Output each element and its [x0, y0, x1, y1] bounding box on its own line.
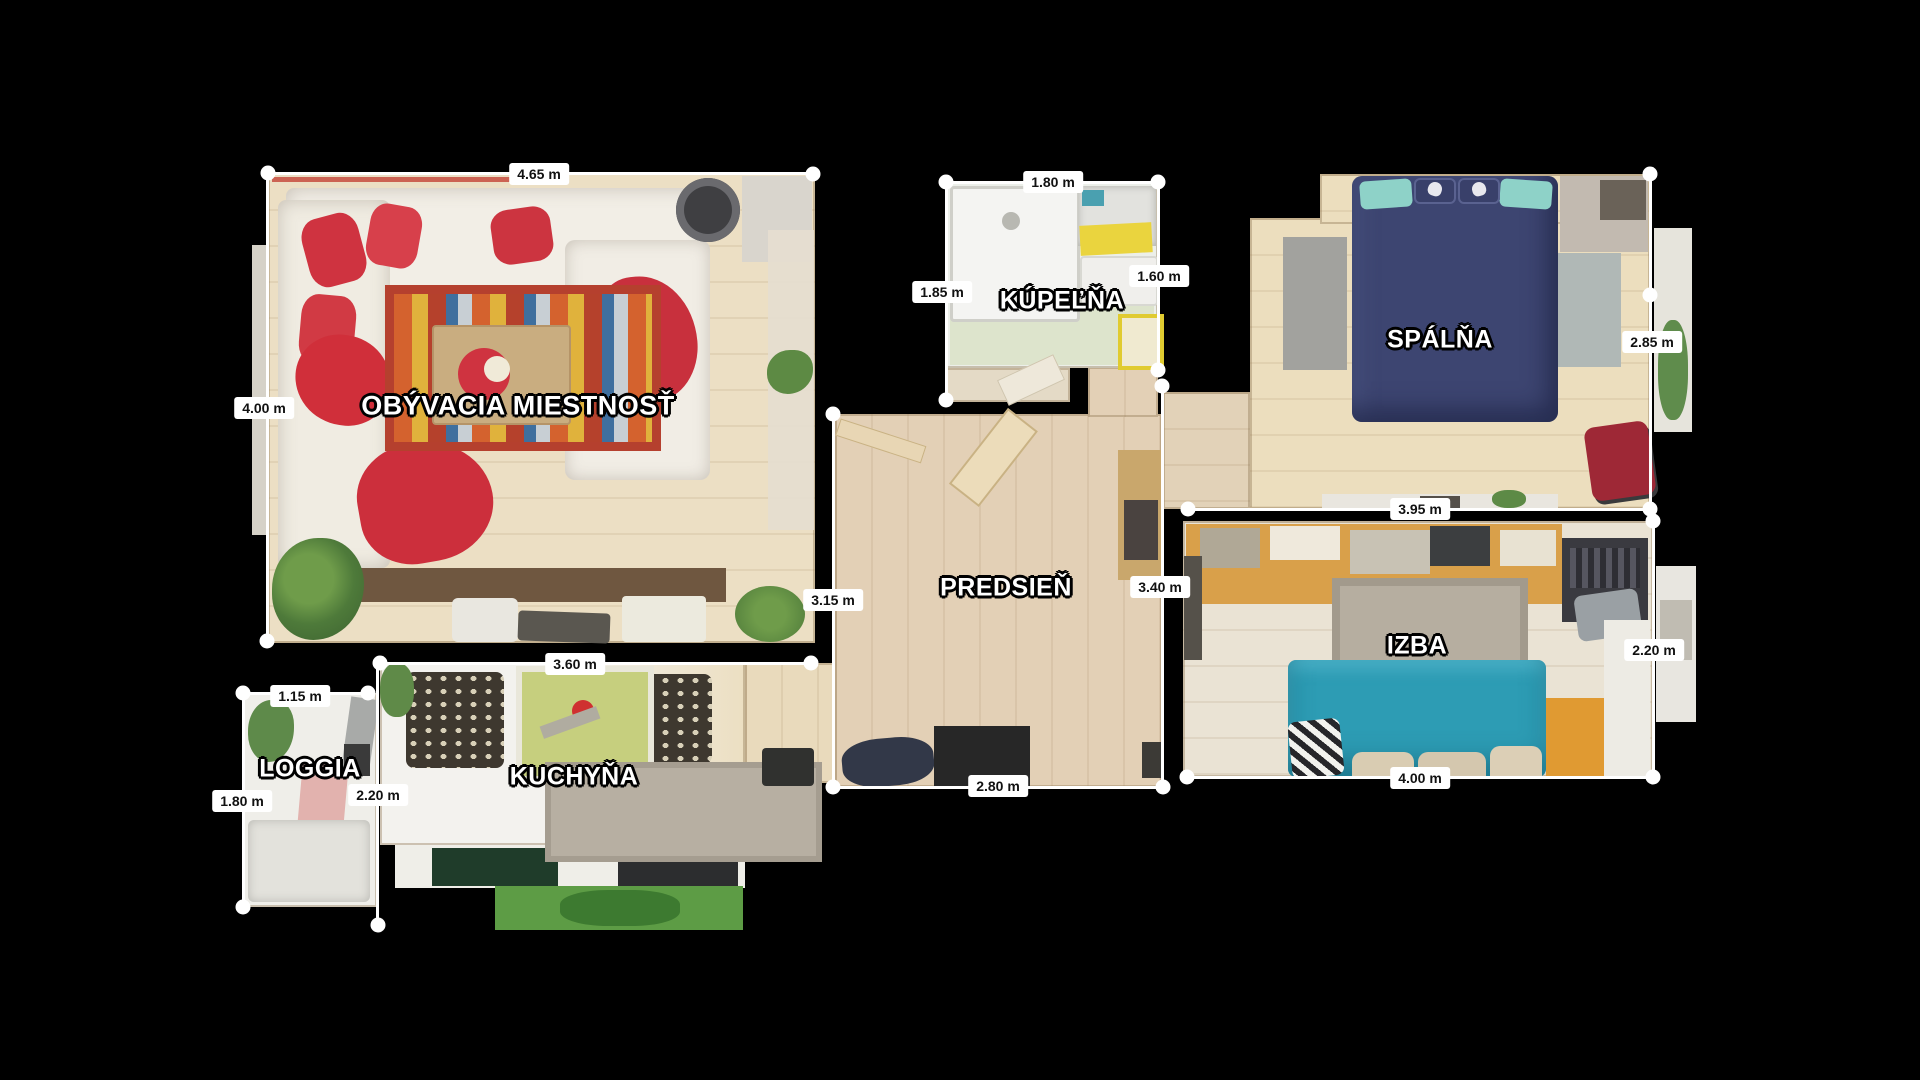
bench: [1546, 698, 1604, 777]
bedside-rug: [1553, 253, 1621, 367]
measure-dot: [1646, 770, 1661, 785]
measure-dot: [806, 167, 821, 182]
red-pillow: [488, 204, 555, 267]
monitor: [1430, 526, 1490, 566]
chair: [518, 610, 611, 643]
room-label-kitchen: KUCHYŇA: [510, 763, 639, 792]
plant: [1492, 490, 1526, 508]
sink: [432, 848, 558, 886]
bedside-rug: [1283, 237, 1347, 370]
measure-dot: [939, 175, 954, 190]
measure-dot: [236, 900, 251, 915]
measure-dot: [260, 634, 275, 649]
room-label-bedroom: SPÁLŇA: [1387, 326, 1493, 355]
red-armchair: [1583, 420, 1657, 502]
kitchen-chair: [406, 672, 504, 768]
floor-plan-canvas: 4.65 m 4.00 m 3.15 m 3.40 m 2.80 m 1.80 …: [0, 0, 1920, 1080]
toiletries: [1082, 190, 1104, 206]
napkin: [484, 356, 510, 382]
teal-pillow: [1359, 178, 1413, 210]
measure-dot: [1151, 175, 1166, 190]
yellow-towels: [1079, 222, 1152, 256]
plant: [380, 663, 414, 717]
measure-dot: [1180, 770, 1195, 785]
measure-dot: [1155, 379, 1170, 394]
desk-clutter: [622, 596, 706, 642]
measure-dot: [826, 780, 841, 795]
measure-dot: [373, 656, 388, 671]
room-label-living: OBÝVACIA MIESTNOSŤ: [361, 391, 675, 422]
desk-clutter: [1350, 530, 1430, 574]
cushion: [1490, 746, 1542, 777]
dim-living-left: 4.00 m: [234, 397, 294, 419]
dim-bath-left: 1.85 m: [912, 281, 972, 303]
measure-dot: [261, 166, 276, 181]
measure-dot: [371, 918, 386, 933]
desk-clutter: [1200, 528, 1260, 568]
plant: [735, 586, 805, 642]
hall-corridor-to-bath: [1088, 367, 1158, 417]
dim-living-top: 4.65 m: [509, 163, 569, 185]
dim-bath-right: 1.60 m: [1129, 265, 1189, 287]
measure-dot: [804, 656, 819, 671]
dim-bath-top: 1.80 m: [1023, 171, 1083, 193]
dim-izba-right: 2.20 m: [1624, 639, 1684, 661]
measure-dot: [361, 686, 376, 701]
zebra-pillow: [1287, 717, 1345, 779]
fan: [676, 178, 740, 242]
corridor-floor: [1163, 392, 1250, 509]
measure-dot: [1646, 514, 1661, 529]
measure-dot: [1643, 167, 1658, 182]
wall-unit: [1184, 556, 1202, 660]
room-label-bath: KÚPEĽŇA: [1000, 287, 1124, 316]
floor-mat-shadow: [560, 890, 680, 926]
dim-hall-bottom: 2.80 m: [968, 775, 1028, 797]
shelf-items: [1124, 500, 1158, 560]
measure-dot: [939, 393, 954, 408]
dim-kitchen-top: 3.60 m: [545, 653, 605, 675]
teal-pillow: [1499, 178, 1553, 210]
suitcase: [762, 748, 814, 786]
measure-dot: [1181, 502, 1196, 517]
dim-bedroom-right: 2.85 m: [1622, 331, 1682, 353]
desk-clutter: [1500, 530, 1556, 566]
desk-clutter: [1270, 526, 1340, 560]
dim-loggia-right: 2.20 m: [348, 784, 408, 806]
room-label-hall: PREDSIEŇ: [940, 574, 1072, 603]
bed: [1352, 176, 1558, 422]
hanging-clothes: [1570, 548, 1640, 588]
measure-dot: [826, 407, 841, 422]
dim-hall-right: 3.40 m: [1130, 576, 1190, 598]
dim-bedroom-bottom: 3.95 m: [1390, 498, 1450, 520]
room-label-loggia: LOGGIA: [259, 755, 361, 784]
shower-drain: [1002, 212, 1020, 230]
dim-loggia-left: 1.80 m: [212, 790, 272, 812]
dim-loggia-top: 1.15 m: [270, 685, 330, 707]
dim-izba-bottom: 4.00 m: [1390, 767, 1450, 789]
closet-items: [1600, 180, 1646, 220]
room-label-izba: IZBA: [1387, 632, 1447, 661]
chair: [452, 598, 518, 642]
measure-dot: [236, 686, 251, 701]
dim-hall-left: 3.15 m: [803, 589, 863, 611]
dark-item: [1142, 742, 1162, 778]
measure-dot: [1156, 780, 1171, 795]
loggia-furniture: [248, 820, 370, 902]
measure-dot: [1643, 288, 1658, 303]
measure-dot: [1151, 363, 1166, 378]
